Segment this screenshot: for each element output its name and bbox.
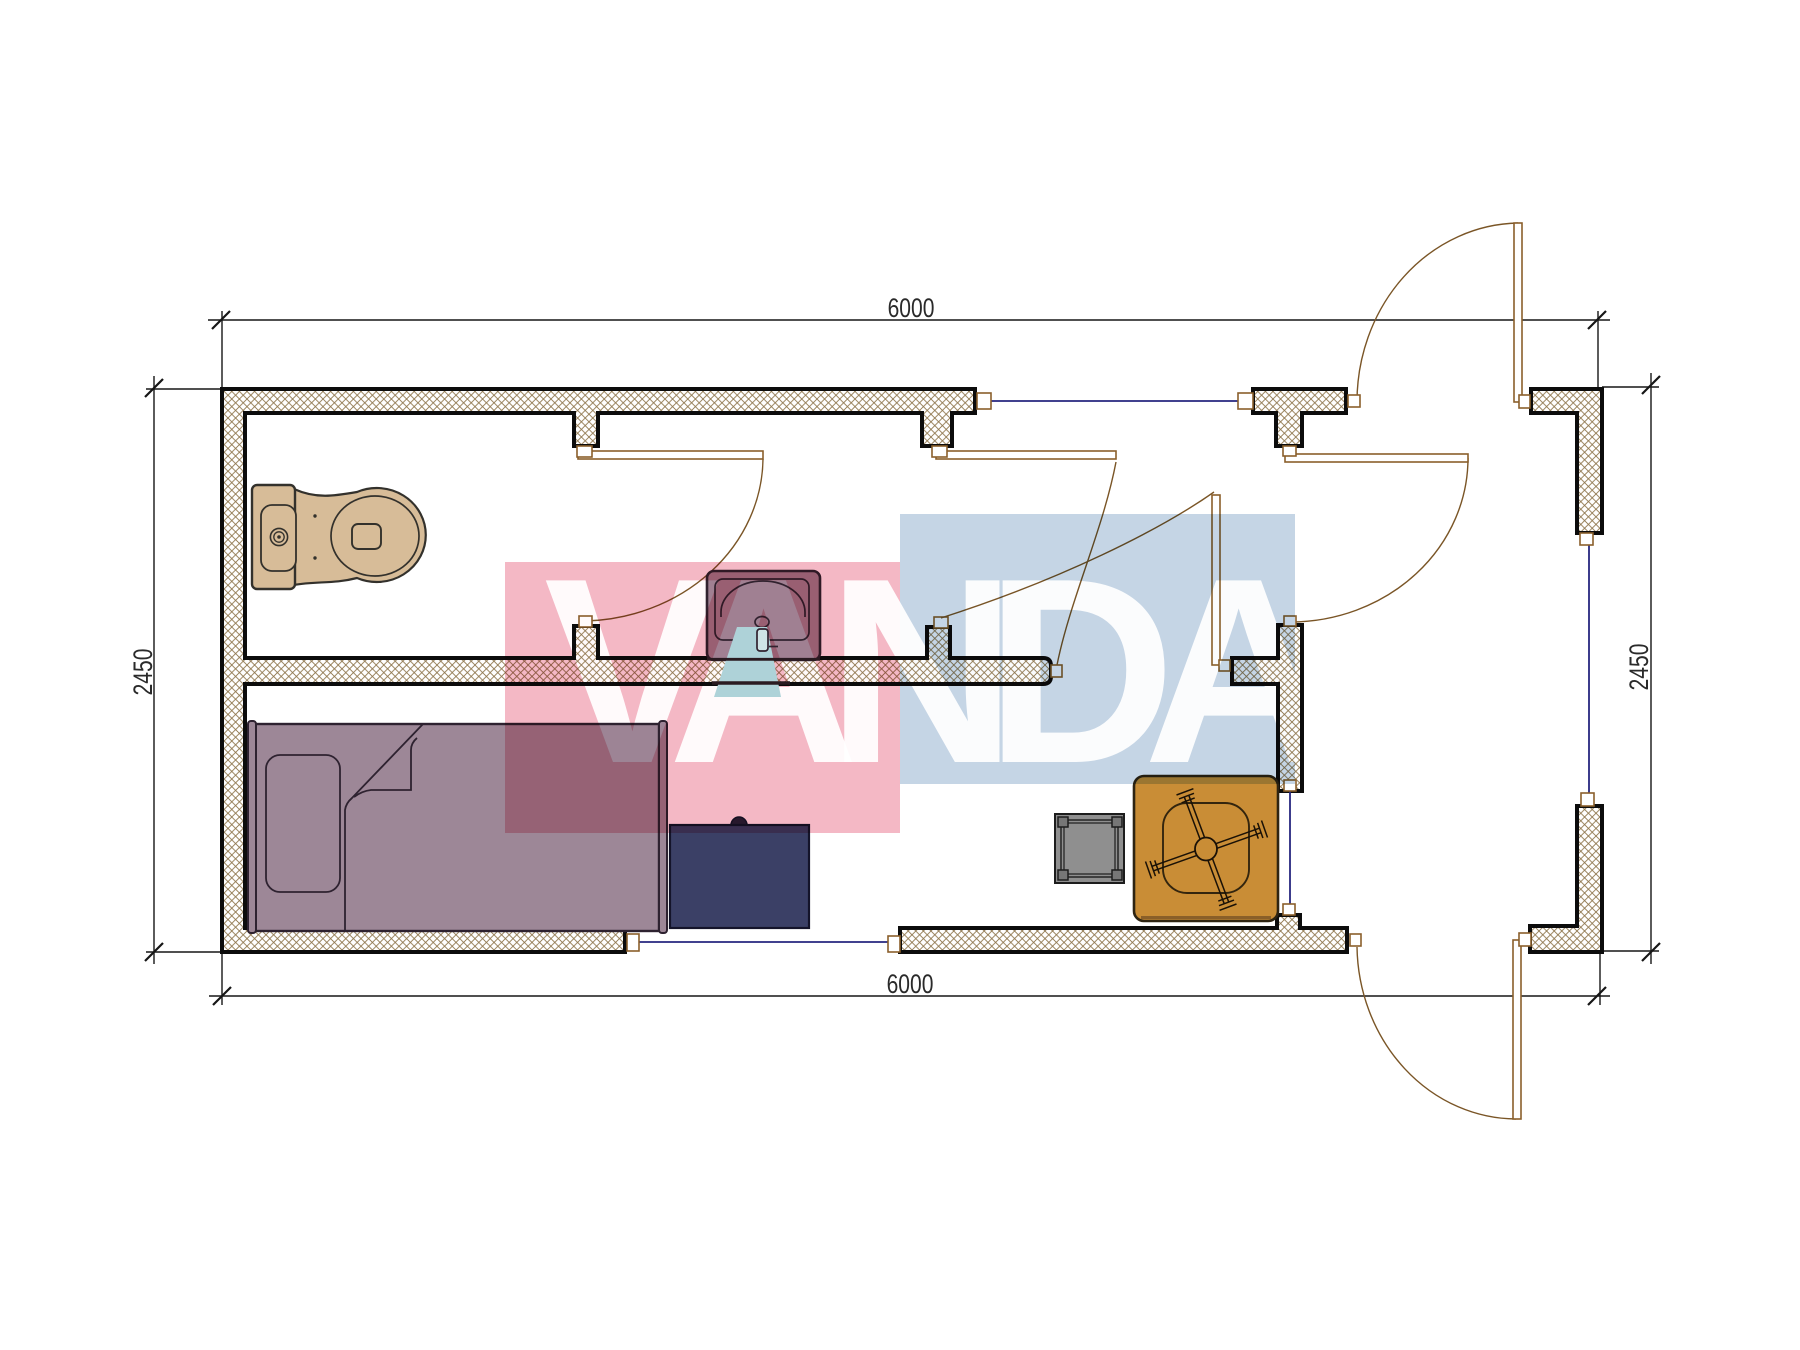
svg-text:2450: 2450 bbox=[129, 649, 159, 696]
svg-text:6000: 6000 bbox=[888, 294, 935, 324]
svg-text:2450: 2450 bbox=[1625, 644, 1655, 691]
svg-text:VANDA: VANDA bbox=[544, 523, 1334, 818]
svg-text:6000: 6000 bbox=[887, 970, 934, 1000]
